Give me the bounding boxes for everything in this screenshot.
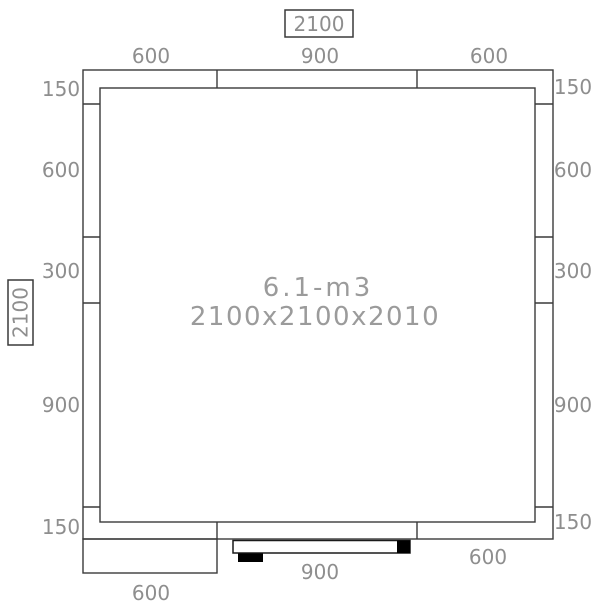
dim-left-600: 600: [42, 158, 80, 182]
dim-left-900: 900: [42, 393, 80, 417]
dim-right-300: 300: [554, 259, 592, 283]
room-volume-label: 6.1-m3: [263, 273, 374, 303]
door-hinge-block: [397, 541, 410, 554]
dim-top-right-600: 600: [470, 44, 508, 68]
dim-left-300: 300: [42, 259, 80, 283]
floor-plan-drawing: 2100 2100 600 900 600 150 600 300 900 15…: [0, 0, 600, 612]
dim-right-150-bottom: 150: [554, 510, 592, 534]
dim-right-150-top: 150: [554, 75, 592, 99]
dim-right-600: 600: [554, 158, 592, 182]
door-group: [233, 541, 410, 563]
dim-bottom-door-900: 900: [301, 560, 339, 584]
right-dimension-labels: 150 600 300 900 150: [554, 75, 592, 534]
floor-plan-canvas: 2100 2100 600 900 600 150 600 300 900 15…: [0, 0, 600, 612]
door-leaf: [233, 541, 410, 554]
top-dimension-labels: 600 900 600: [132, 44, 508, 68]
overall-width-label: 2100: [294, 12, 345, 36]
dim-left-150-bottom: 150: [42, 515, 80, 539]
bottom-left-panel: [83, 539, 217, 573]
left-dimension-labels: 150 600 300 900 150: [42, 77, 80, 539]
door-handle-block: [238, 554, 263, 563]
bottom-dimension-labels: 900 600 600: [132, 545, 507, 605]
dim-top-left-600: 600: [132, 44, 170, 68]
dim-right-900: 900: [554, 393, 592, 417]
room-size-label: 2100x2100x2010: [190, 302, 440, 332]
dim-left-150-top: 150: [42, 77, 80, 101]
dim-top-center-900: 900: [301, 44, 339, 68]
room-center-label: 6.1-m3 2100x2100x2010: [190, 273, 440, 332]
dim-bottom-right-600: 600: [469, 545, 507, 569]
dim-bottom-left-600: 600: [132, 581, 170, 605]
overall-height-label: 2100: [9, 287, 33, 338]
